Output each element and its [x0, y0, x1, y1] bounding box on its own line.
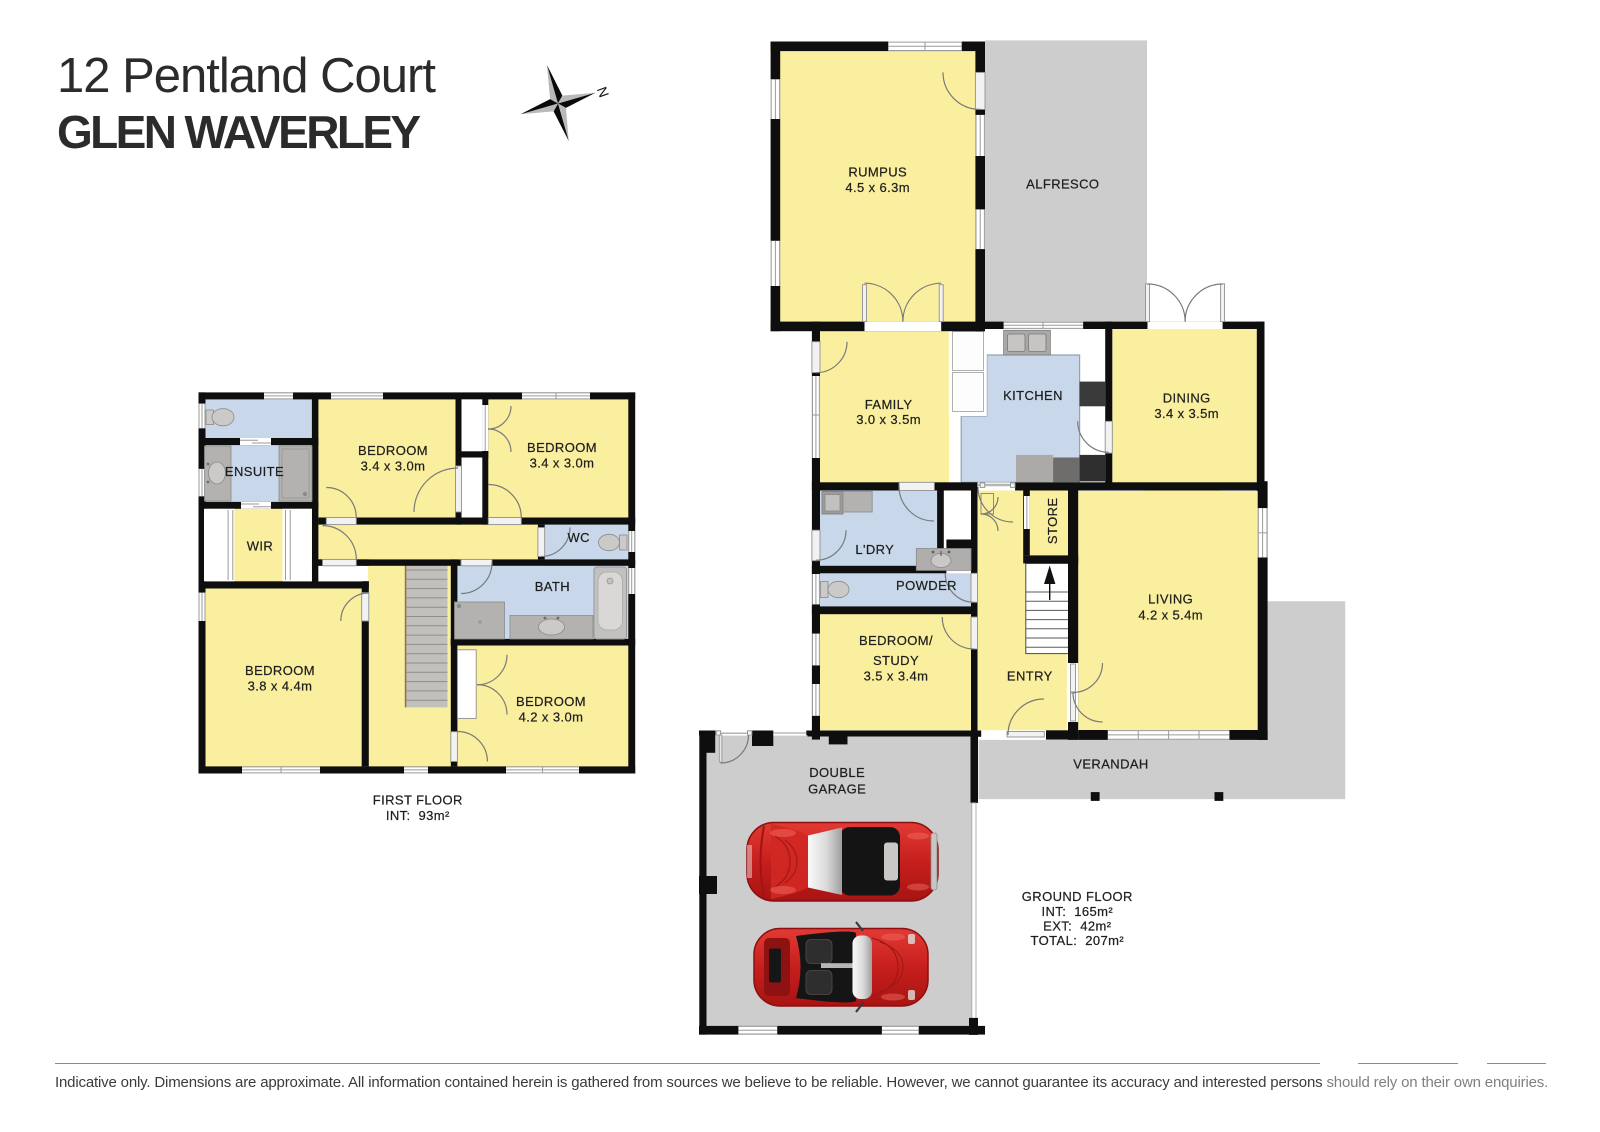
svg-text:ENTRY: ENTRY — [1007, 669, 1053, 684]
svg-text:GROUND FLOOR: GROUND FLOOR — [1022, 889, 1133, 904]
svg-text:L'DRY: L'DRY — [855, 542, 894, 557]
svg-text:INT: 93m²: INT: 93m² — [386, 808, 450, 823]
svg-text:FIRST FLOOR: FIRST FLOOR — [373, 792, 463, 807]
svg-text:DINING: DINING — [1163, 391, 1211, 406]
svg-text:GLEN WAVERLEY: GLEN WAVERLEY — [57, 106, 420, 158]
svg-text:3.0 x 3.5m: 3.0 x 3.5m — [856, 412, 921, 427]
svg-text:INT: 165m²: INT: 165m² — [1042, 904, 1114, 919]
svg-text:BEDROOM/: BEDROOM/ — [859, 633, 933, 648]
svg-text:GARAGE: GARAGE — [808, 782, 866, 797]
svg-text:WC: WC — [567, 530, 589, 545]
svg-text:4.2 x 5.4m: 4.2 x 5.4m — [1138, 608, 1203, 623]
svg-text:3.4 x 3.5m: 3.4 x 3.5m — [1154, 406, 1219, 421]
svg-text:STORE: STORE — [1045, 498, 1060, 545]
svg-text:STUDY: STUDY — [873, 653, 919, 668]
svg-text:4.5 x 6.3m: 4.5 x 6.3m — [845, 180, 910, 195]
svg-text:ALFRESCO: ALFRESCO — [1026, 176, 1099, 191]
svg-text:3.5 x 3.4m: 3.5 x 3.4m — [864, 669, 929, 684]
svg-text:TOTAL: 207m²: TOTAL: 207m² — [1031, 933, 1125, 948]
svg-text:ENSUITE: ENSUITE — [225, 464, 284, 479]
svg-text:3.4 x 3.0m: 3.4 x 3.0m — [530, 456, 595, 471]
svg-text:DOUBLE: DOUBLE — [809, 765, 865, 780]
svg-text:BATH: BATH — [535, 579, 570, 594]
svg-text:Indicative only. Dimensions ar: Indicative only. Dimensions are approxim… — [55, 1074, 1548, 1091]
svg-text:BEDROOM: BEDROOM — [358, 443, 428, 458]
svg-text:BEDROOM: BEDROOM — [527, 440, 597, 455]
svg-text:BEDROOM: BEDROOM — [245, 663, 315, 678]
svg-text:FAMILY: FAMILY — [865, 397, 913, 412]
svg-text:WIR: WIR — [247, 539, 273, 554]
svg-text:RUMPUS: RUMPUS — [848, 164, 907, 179]
svg-text:BEDROOM: BEDROOM — [516, 694, 586, 709]
svg-text:POWDER: POWDER — [896, 578, 957, 593]
svg-text:VERANDAH: VERANDAH — [1073, 757, 1148, 772]
svg-text:12 Pentland Court: 12 Pentland Court — [57, 49, 436, 103]
svg-text:3.4 x 3.0m: 3.4 x 3.0m — [361, 459, 426, 474]
svg-text:N: N — [594, 85, 612, 100]
svg-text:4.2 x 3.0m: 4.2 x 3.0m — [519, 710, 584, 725]
svg-text:LIVING: LIVING — [1148, 592, 1193, 607]
svg-text:EXT: 42m²: EXT: 42m² — [1043, 919, 1112, 934]
svg-text:3.8 x 4.4m: 3.8 x 4.4m — [248, 679, 313, 694]
svg-text:KITCHEN: KITCHEN — [1003, 388, 1063, 403]
